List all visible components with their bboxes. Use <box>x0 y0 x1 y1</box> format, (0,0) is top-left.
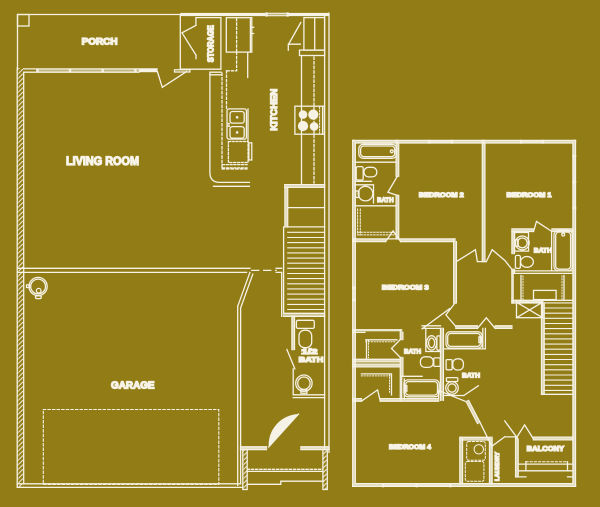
svg-text:PORCH: PORCH <box>82 37 118 47</box>
svg-text:BATH: BATH <box>534 248 552 255</box>
svg-text:BEDROOM 2: BEDROOM 2 <box>419 192 464 199</box>
svg-text:BATH: BATH <box>462 372 480 379</box>
svg-text:BATH: BATH <box>404 349 421 356</box>
svg-text:BATH: BATH <box>299 355 324 364</box>
svg-text:BEDROOM 3: BEDROOM 3 <box>382 284 429 291</box>
svg-text:LAUNDRY: LAUNDRY <box>495 452 501 481</box>
svg-text:LIVING ROOM: LIVING ROOM <box>66 154 139 168</box>
svg-text:BEDROOM 4: BEDROOM 4 <box>389 444 431 451</box>
svg-text:BEDROOM 1: BEDROOM 1 <box>507 192 552 199</box>
svg-text:STORAGE: STORAGE <box>206 25 215 63</box>
svg-text:BATH: BATH <box>377 197 394 204</box>
svg-text:KITCHEN: KITCHEN <box>269 88 279 130</box>
svg-text:BALCONY: BALCONY <box>527 444 565 453</box>
svg-text:GARAGE: GARAGE <box>111 380 155 391</box>
